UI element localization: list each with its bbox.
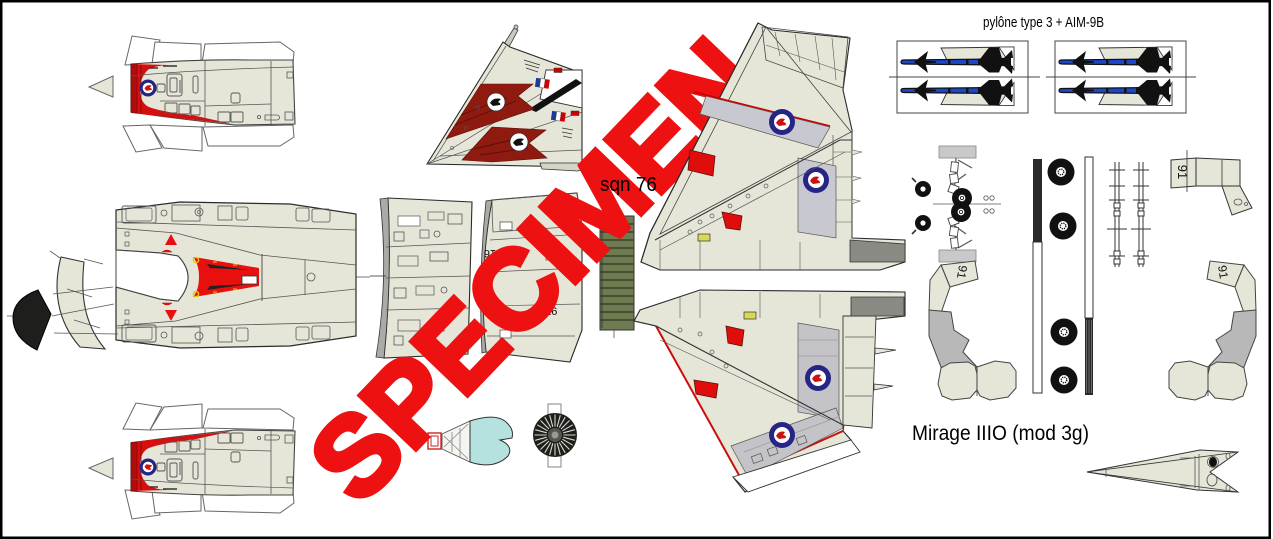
svg-text:91: 91 [1215, 264, 1231, 280]
svg-text:91: 91 [954, 264, 970, 280]
svg-text:Mirage IIIO (mod 3g): Mirage IIIO (mod 3g) [912, 421, 1089, 445]
svg-text:sqn 76: sqn 76 [600, 174, 657, 196]
svg-text:91: 91 [1175, 165, 1190, 179]
svg-text:pylône type 3 + AIM-9B: pylône type 3 + AIM-9B [983, 15, 1104, 31]
